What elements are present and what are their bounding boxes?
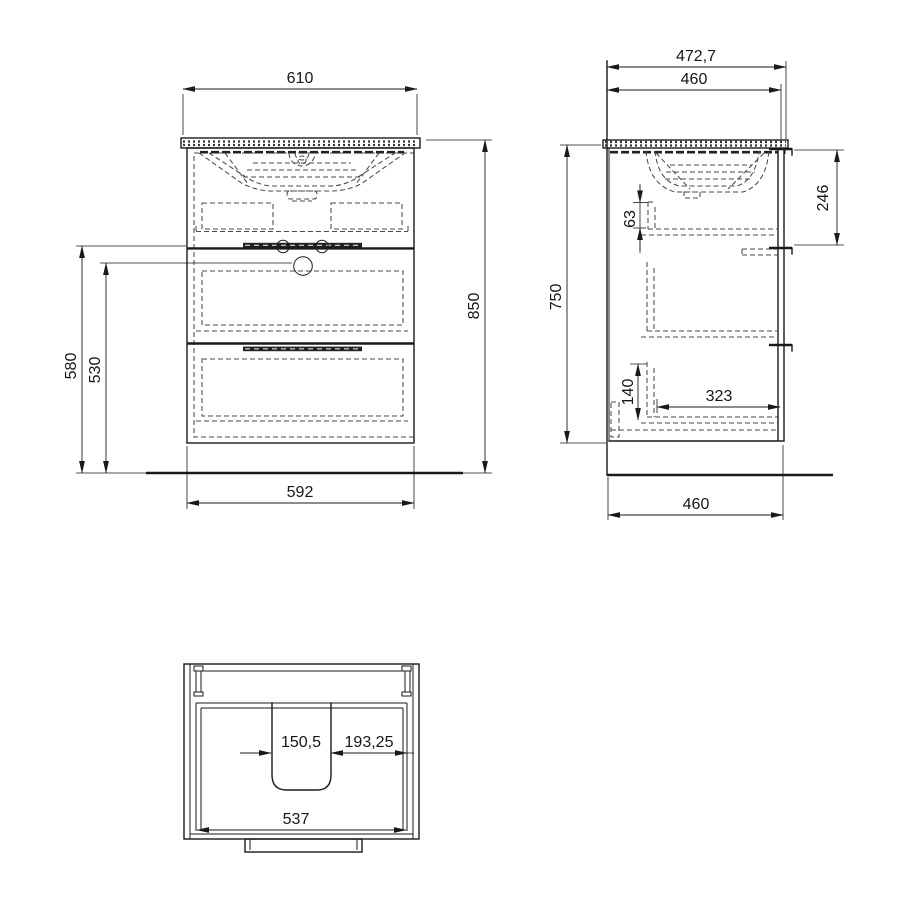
dim-label: 246 — [815, 185, 832, 212]
technical-drawing-page: 610 850 580 530 592 — [0, 0, 900, 900]
dim-label: 610 — [287, 70, 314, 87]
technical-drawing: 610 850 580 530 592 — [0, 0, 900, 900]
dim-label: 460 — [683, 496, 710, 513]
dim-label: 750 — [548, 284, 565, 311]
dim-label: 850 — [466, 293, 483, 320]
dim-label: 460 — [681, 71, 708, 88]
dim-label: 580 — [63, 353, 80, 380]
dim-label: 140 — [620, 379, 637, 406]
dim-label: 323 — [706, 388, 733, 405]
dim-label: 537 — [283, 811, 310, 828]
dim-label: 592 — [287, 484, 314, 501]
dim-label: 193,25 — [345, 734, 394, 751]
dim-label: 472,7 — [676, 48, 716, 65]
dim-label: 63 — [622, 210, 639, 228]
background — [0, 0, 900, 900]
dim-label: 530 — [87, 357, 104, 384]
dim-label: 150,5 — [281, 734, 321, 751]
